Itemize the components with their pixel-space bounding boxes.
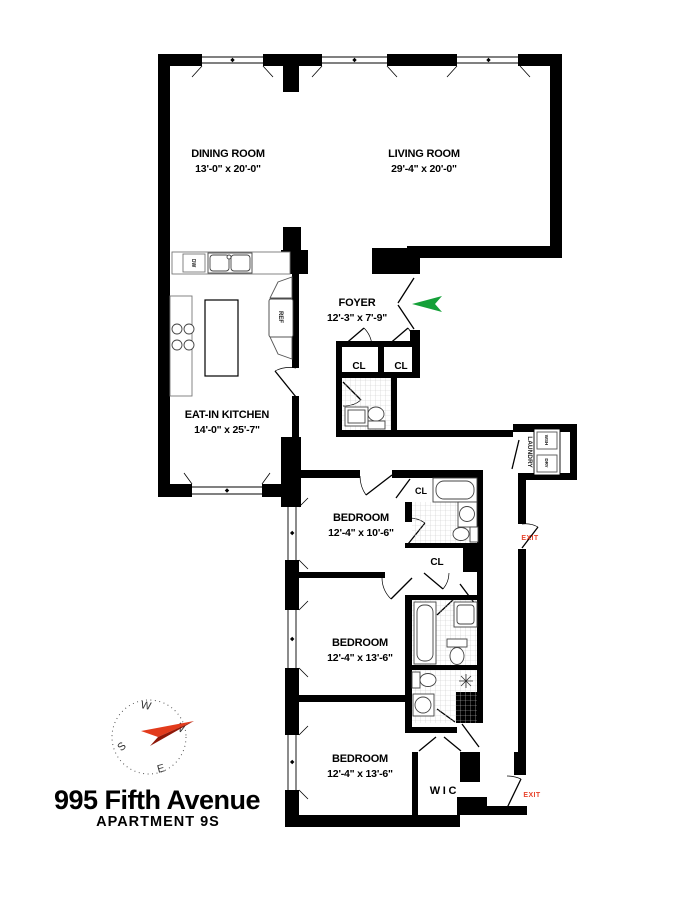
laundry-label: LAUNDRY xyxy=(526,436,533,468)
exit-label: EXIT xyxy=(521,535,538,542)
wall-segment xyxy=(336,341,342,437)
kitchen-cabinet xyxy=(270,277,292,298)
living-room-dims: 29'-4" x 20'-0" xyxy=(391,163,457,175)
wic-label: W I C xyxy=(430,785,457,797)
wall-segment xyxy=(336,372,420,378)
window-reveal xyxy=(184,473,270,484)
toilet-tank xyxy=(412,672,420,688)
wall-segment xyxy=(285,815,460,827)
bedroom2-dims: 12'-4" x 13'-6" xyxy=(327,652,393,664)
wall-segment xyxy=(477,470,483,723)
kitchen-island xyxy=(205,300,238,376)
wall-segment xyxy=(407,246,562,258)
wic-doors xyxy=(419,737,461,751)
bedroom3-door xyxy=(462,724,479,747)
powder-sink-basin xyxy=(348,410,365,423)
washer-label: WSH xyxy=(544,435,549,446)
wall-segment xyxy=(263,54,322,66)
wall-segment xyxy=(405,595,477,600)
kitchen-cabinet xyxy=(270,337,292,359)
kitchen-label: EAT-IN KITCHEN xyxy=(185,409,270,421)
dishwasher-label: DW xyxy=(190,259,196,268)
window-mullion xyxy=(290,637,294,641)
bathtub-basin xyxy=(417,605,433,661)
closet-label: CL xyxy=(415,486,427,496)
laundry-door xyxy=(512,440,519,469)
window-mullion xyxy=(290,531,294,535)
window-mullion xyxy=(290,760,294,764)
refrigerator-label: REF xyxy=(277,311,283,323)
floor-plan-page: DINING ROOM 13'-0" x 20'-0" LIVING ROOM … xyxy=(0,0,694,906)
wall-segment xyxy=(550,54,562,258)
closet-door xyxy=(396,479,410,498)
stove-burner xyxy=(172,340,182,350)
wall-segment xyxy=(514,752,526,775)
wall-segment xyxy=(405,502,412,522)
dryer-label: DRY xyxy=(544,458,549,467)
toilet-tank xyxy=(447,639,467,647)
compass-west: W xyxy=(139,699,152,713)
kitchen-faucet xyxy=(227,255,231,259)
kitchen-dims: 14'-0" x 25'-7" xyxy=(194,424,260,436)
closet-label: CL xyxy=(394,361,407,372)
closet-door-swing xyxy=(443,573,449,589)
wall-segment xyxy=(405,595,412,733)
closet-door xyxy=(424,573,443,589)
bedroom1-door-swing xyxy=(360,476,366,495)
bath2-sink-basin xyxy=(457,605,474,624)
foyer-dims: 12'-3" x 7'-9" xyxy=(327,312,387,324)
wall-segment xyxy=(285,560,299,610)
compass-rose: W S E N xyxy=(112,699,194,776)
pedestal-sink-basin xyxy=(415,697,431,713)
toilet-tank xyxy=(470,527,478,542)
kitchen-sink-basin xyxy=(231,255,250,271)
wall-segment xyxy=(405,543,477,548)
bathtub-basin xyxy=(436,481,474,499)
living-room-label: LIVING ROOM xyxy=(388,148,460,160)
bedroom1-dims: 12'-4" x 10'-6" xyxy=(328,527,394,539)
kitchen-door xyxy=(275,371,296,397)
toilet-tank xyxy=(368,421,385,429)
wall-segment xyxy=(158,54,170,497)
bedroom1-door xyxy=(366,475,392,495)
bath1-sink-basin xyxy=(460,507,475,522)
stove-burner xyxy=(172,324,182,334)
toilet-bowl xyxy=(368,407,384,421)
wall-segment xyxy=(158,484,192,497)
entry-door xyxy=(398,278,414,329)
wall-segment xyxy=(336,430,513,437)
toilet-bowl xyxy=(450,648,464,665)
exit-label: EXIT xyxy=(523,792,540,799)
exit-door-swing xyxy=(507,776,521,779)
window-mullion xyxy=(486,58,490,62)
wall-segment xyxy=(518,549,526,752)
toilet-bowl xyxy=(453,528,469,541)
bedroom2-door-swing xyxy=(382,578,391,599)
compass-south: S xyxy=(115,740,128,754)
window-reveal xyxy=(192,66,530,77)
wall-segment xyxy=(292,396,299,437)
wall-segment xyxy=(405,727,457,733)
bedroom1-label: BEDROOM xyxy=(333,512,389,524)
kitchen-sink-basin xyxy=(210,255,229,271)
wall-segment xyxy=(285,572,385,578)
exit-door-swing xyxy=(522,524,538,527)
wall-segment xyxy=(570,424,577,480)
wall-segment xyxy=(372,248,420,274)
compass-east: E xyxy=(156,762,166,775)
window-mullion xyxy=(352,58,356,62)
shower-head-icon xyxy=(459,674,473,688)
bedroom3-label: BEDROOM xyxy=(332,753,388,765)
entry-arrow-icon xyxy=(412,296,442,312)
dining-room-dims: 13'-0" x 20'-0" xyxy=(195,163,261,175)
apartment-number: APARTMENT 9S xyxy=(96,814,220,830)
wall-segment xyxy=(457,797,487,815)
exit-door xyxy=(507,779,521,808)
wall-segment xyxy=(285,470,360,478)
toilet-bowl xyxy=(420,674,436,687)
building-address: 995 Fifth Avenue xyxy=(54,785,261,815)
closet-label: CL xyxy=(430,557,443,568)
wall-segment xyxy=(283,66,299,92)
wall-segment xyxy=(405,665,477,670)
wall-segment xyxy=(463,548,477,572)
wall-segment xyxy=(387,54,457,66)
wall-segment xyxy=(391,378,397,437)
bedroom3-dims: 12'-4" x 13'-6" xyxy=(327,768,393,780)
bedroom2-label: BEDROOM xyxy=(332,637,388,649)
window-mullion xyxy=(230,58,234,62)
closet-label: CL xyxy=(352,361,365,372)
floor-plan-image: DINING ROOM 13'-0" x 20'-0" LIVING ROOM … xyxy=(0,0,694,906)
dining-room-label: DINING ROOM xyxy=(191,148,265,160)
wall-segment xyxy=(518,480,526,524)
wall-segment xyxy=(392,470,483,478)
window-reveal xyxy=(299,498,308,799)
stove-burner xyxy=(184,340,194,350)
stove-burner xyxy=(184,324,194,334)
wall-segment xyxy=(460,752,480,782)
wall-segment xyxy=(285,695,412,702)
window-mullion xyxy=(225,488,229,492)
foyer-label: FOYER xyxy=(339,297,376,309)
wall-segment xyxy=(412,752,418,815)
